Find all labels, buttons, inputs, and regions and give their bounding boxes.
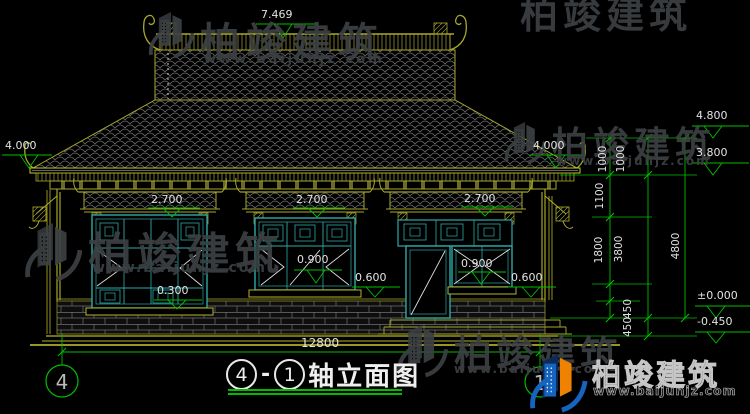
dim-label-4800: 4800 (671, 233, 682, 260)
level-label-lintel-mid: 2.700 (296, 194, 328, 205)
level-label-site: -0.450 (697, 316, 732, 327)
title-axis-start-bubble: 4 (226, 359, 257, 390)
level-label-eaves-right: 4.000 (533, 140, 565, 151)
level-label-4800: 4.800 (696, 110, 728, 121)
title-axis-end-bubble: 1 (274, 359, 305, 390)
dim-label-1800: 1800 (594, 237, 605, 264)
dim-label-total-width: 12800 (301, 337, 339, 349)
level-label-floor: ±0.000 (697, 290, 738, 301)
dim-label-450-b: 450 (623, 317, 634, 337)
watermark-url-text: www.baijunjz.com (92, 260, 267, 276)
level-label-plinth-mid: 0.600 (355, 272, 387, 283)
level-label-eaves-left: 4.000 (5, 140, 37, 151)
level-label-sill-right: 0.900 (461, 258, 493, 269)
dim-label-1100: 1100 (595, 183, 606, 210)
title-text: 轴立面图 (308, 356, 420, 393)
title-separator: - (261, 362, 270, 387)
watermark-url-text: www.baijunjz.com (556, 154, 711, 168)
level-label-ridge: 7.469 (261, 9, 293, 20)
level-label-sill-left: 0.300 (157, 285, 189, 296)
dim-label-1000-b: 1000 (616, 146, 627, 173)
title-underline-2 (228, 393, 402, 395)
logo-url-text: www.baijunjz.com (593, 383, 737, 398)
dim-label-1000-a: 1000 (598, 146, 609, 173)
brand-building-icon (148, 8, 194, 62)
drawing-title: 4 - 1 轴立面图 (226, 356, 420, 393)
watermark-url-text: www.baijunjz.com (204, 52, 385, 67)
level-label-lintel-left: 2.700 (151, 194, 183, 205)
brand-building-icon-color (526, 352, 590, 414)
level-label-3800: 3.800 (696, 147, 728, 158)
level-label-sill-mid: 0.900 (297, 254, 329, 265)
cad-elevation-canvas: 7.469 4.000 4.000 4.800 3.800 ±0.000 -0.… (0, 0, 750, 414)
axis-bubble-left: 4 (56, 370, 69, 394)
level-label-plinth-right: 0.600 (511, 272, 543, 283)
level-label-lintel-right: 2.700 (464, 193, 496, 204)
watermark-brand-text: 柏竣建筑 (520, 0, 692, 39)
brand-building-icon (24, 218, 82, 286)
watermark-top-right: 柏竣建筑 (520, 0, 692, 39)
dim-label-3800: 3800 (614, 236, 625, 263)
title-underline-1 (228, 389, 402, 391)
